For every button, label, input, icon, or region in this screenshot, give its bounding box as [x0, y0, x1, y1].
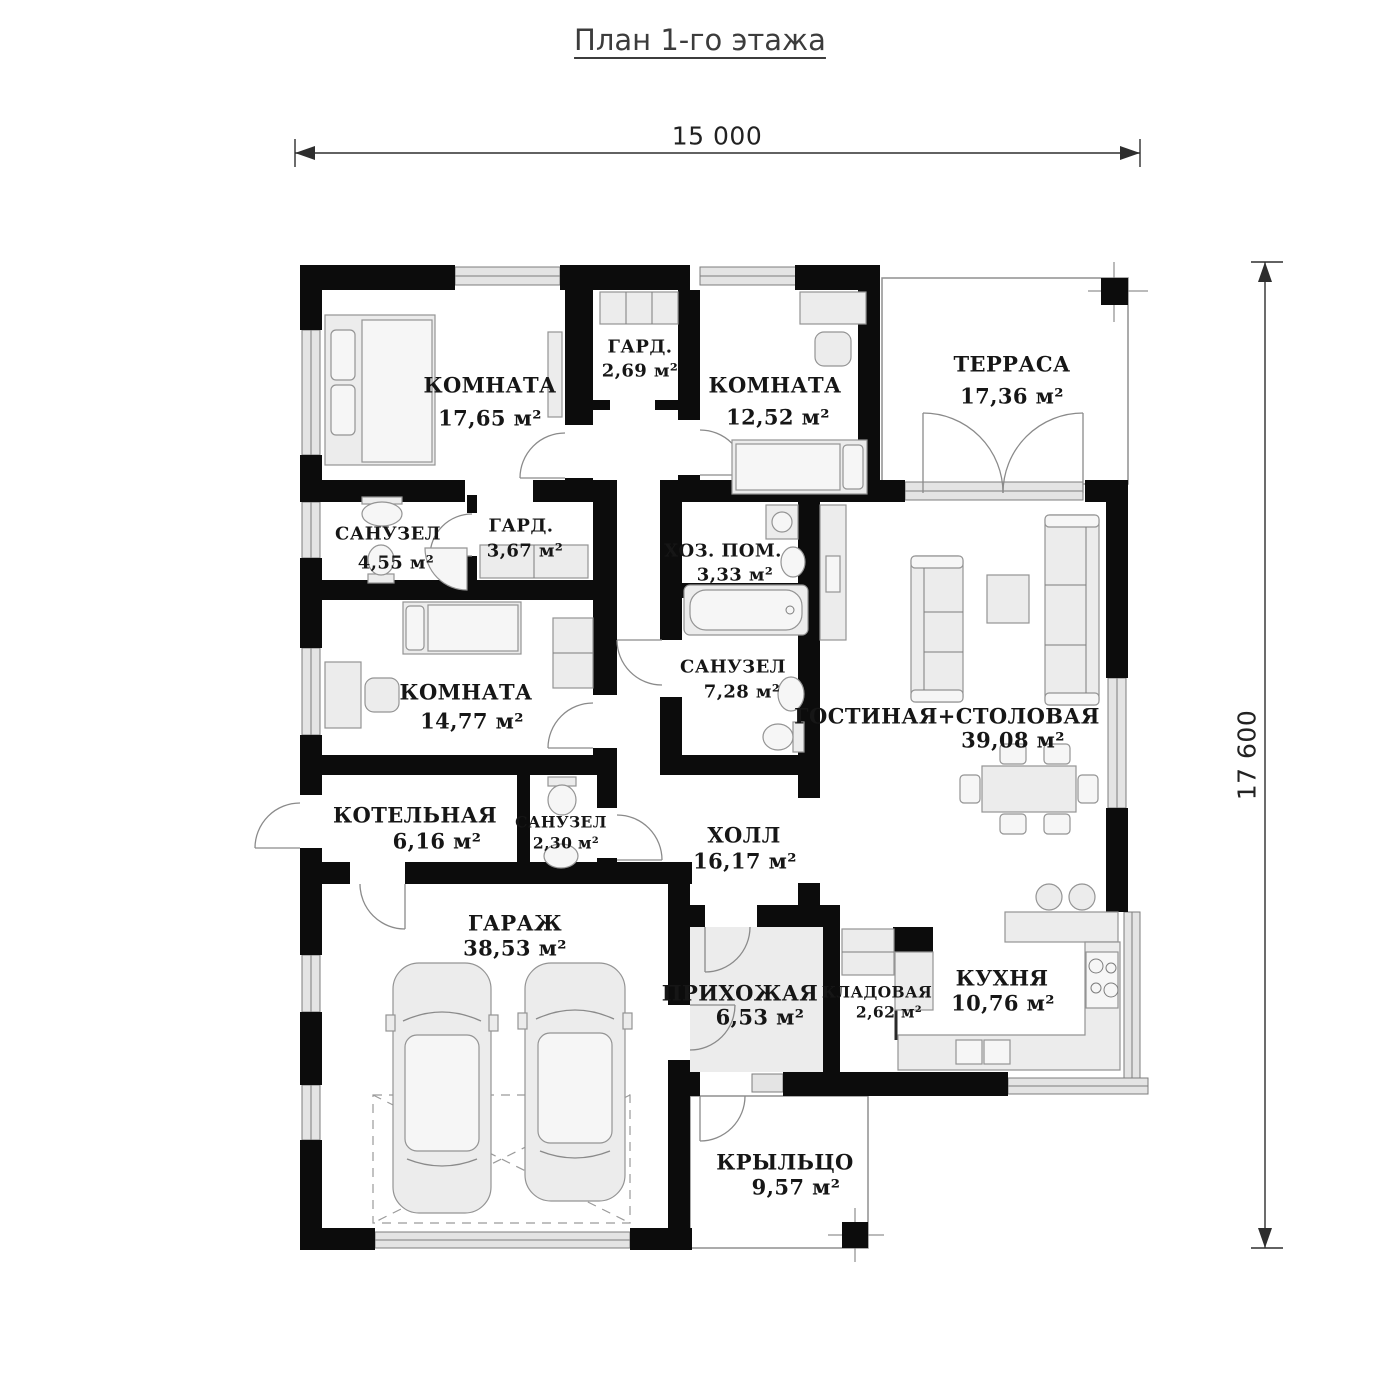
stove-icon: [1086, 952, 1118, 1008]
room-area-wardrobe1: 2,69 м²: [602, 361, 678, 382]
porch-column: [842, 1222, 868, 1248]
room-name-living-dining: ГОСТИНАЯ+СТОЛОВАЯ: [794, 704, 1100, 729]
coffee-table-icon: [987, 575, 1029, 623]
room-area-wardrobe2: 3,67 м²: [487, 541, 563, 562]
room-name-bedroom1: КОМНАТА: [423, 373, 556, 398]
room-name-hall: ХОЛЛ: [707, 823, 780, 848]
room-name-utility: ХОЗ. ПОМ.: [664, 541, 782, 562]
chair-icon: [365, 678, 399, 712]
room-area-bathroom1: 4,55 м²: [358, 553, 434, 574]
page-title: План 1-го этажа: [574, 23, 826, 57]
stool-icon: [1036, 884, 1062, 910]
room-area-hall: 16,17 м²: [693, 849, 797, 874]
room-area-garage: 38,53 м²: [463, 936, 567, 961]
room-name-garage: ГАРАЖ: [468, 911, 562, 936]
room-name-bathroom3: САНУЗЕЛ: [515, 813, 607, 832]
room-name-terrace: ТЕРРАСА: [954, 352, 1071, 377]
sink-icon: [781, 547, 805, 577]
room-area-porch: 9,57 м²: [752, 1175, 841, 1200]
room-area-bathroom2: 7,28 м²: [704, 682, 780, 703]
room-area-terrace: 17,36 м²: [960, 384, 1064, 409]
desk-icon: [325, 662, 361, 728]
room-name-bathroom2: САНУЗЕЛ: [680, 657, 786, 678]
sink-icon: [362, 497, 402, 526]
room-area-living-dining: 39,08 м²: [961, 728, 1065, 753]
floor-plan-drawing: [0, 0, 1400, 1400]
room-name-bathroom1: САНУЗЕЛ: [335, 524, 441, 545]
room-name-entry: ПРИХОЖАЯ: [662, 981, 818, 1006]
desk-icon: [800, 292, 866, 324]
room-name-bedroom2: КОМНАТА: [708, 373, 841, 398]
room-area-kitchen: 10,76 м²: [951, 991, 1055, 1016]
room-area-utility: 3,33 м²: [697, 565, 773, 586]
bed-icon: [732, 440, 867, 494]
room-name-wardrobe2: ГАРД.: [489, 516, 554, 537]
shelves-icon: [600, 292, 678, 324]
dimension-height-label: 17 600: [1233, 710, 1262, 800]
room-area-pantry: 2,62 м²: [856, 1003, 922, 1022]
tv-cabinet-icon: [820, 505, 846, 640]
sofa-icon: [911, 556, 963, 702]
room-name-wardrobe1: ГАРД.: [608, 337, 673, 358]
car-icon: [518, 963, 632, 1201]
floor-plan-page: План 1-го этажа 15 000 17 600 КОМНАТА 17…: [0, 0, 1400, 1400]
bar-counter: [1005, 912, 1118, 942]
room-name-pantry: КЛАДОВАЯ: [822, 983, 932, 1002]
room-area-boiler: 6,16 м²: [393, 829, 482, 854]
toilet-icon: [548, 777, 576, 815]
room-name-boiler: КОТЕЛЬНАЯ: [333, 803, 497, 828]
bathtub-icon: [684, 585, 808, 635]
chair-icon: [815, 332, 851, 366]
room-area-bedroom1: 17,65 м²: [438, 406, 542, 431]
bed-icon: [325, 315, 435, 465]
washer-icon: [766, 505, 798, 539]
terrace-double-door: [923, 413, 1083, 493]
room-area-bedroom3: 14,77 м²: [420, 709, 524, 734]
shelves-icon: [842, 929, 894, 975]
room-name-bedroom3: КОМНАТА: [399, 680, 532, 705]
room-area-entry: 6,53 м²: [716, 1005, 805, 1030]
wardrobe-icon: [553, 618, 593, 688]
terrace-column: [1101, 278, 1128, 305]
car-icon: [386, 963, 498, 1213]
stool-icon: [1069, 884, 1095, 910]
room-name-porch: КРЫЛЬЦО: [716, 1150, 853, 1175]
room-area-bedroom2: 12,52 м²: [726, 405, 830, 430]
dining-table-icon: [960, 744, 1098, 834]
sofa-icon: [1045, 515, 1099, 705]
room-name-kitchen: КУХНЯ: [956, 966, 1049, 991]
bed-icon: [403, 602, 521, 654]
room-area-bathroom3: 2,30 м²: [533, 834, 599, 853]
dimension-width-label: 15 000: [672, 122, 762, 151]
